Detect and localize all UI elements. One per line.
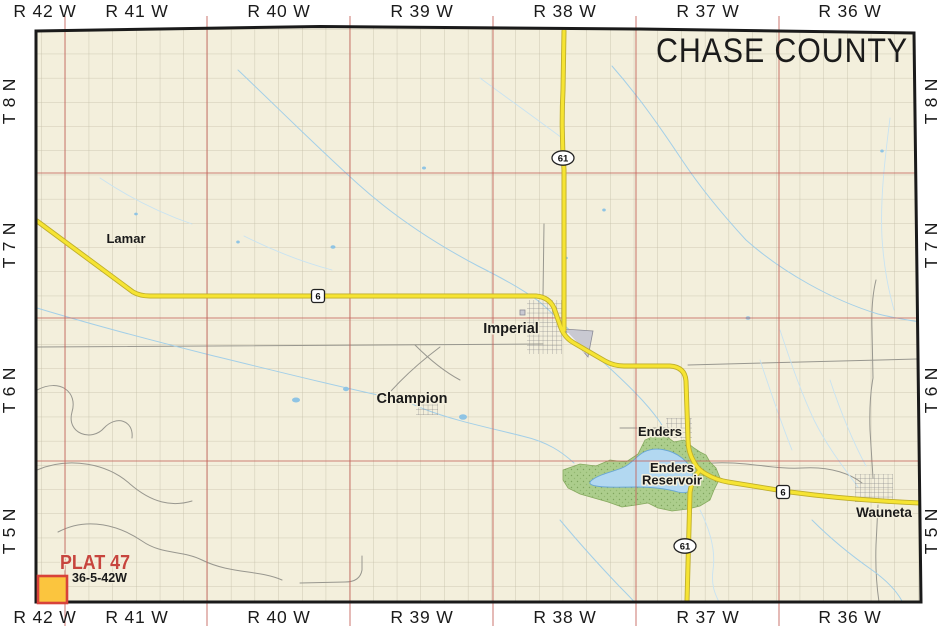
pond <box>343 387 349 391</box>
township-label-right: T 8 N <box>921 78 941 124</box>
pond <box>602 209 606 212</box>
highway-shield-6: 6 <box>777 486 790 499</box>
plat-47-code: 36-5-42W <box>72 571 127 585</box>
pond <box>292 398 300 403</box>
highway-shield-61: 61 <box>674 539 696 553</box>
urban-block <box>520 310 525 315</box>
township-label-left: T 6 N <box>0 367 19 413</box>
pond <box>880 150 884 153</box>
town-label-champion: Champion <box>377 391 448 407</box>
range-label-top: R 36 W <box>818 1 881 21</box>
range-label-bottom: R 38 W <box>533 607 596 627</box>
section-grid <box>36 26 922 603</box>
map-interior <box>36 26 940 604</box>
range-label-bottom: R 36 W <box>818 607 881 627</box>
highway-61-north <box>562 31 564 330</box>
shield-number: 6 <box>780 487 785 498</box>
range-label-top: R 40 W <box>247 1 310 21</box>
township-label-right: T 5 N <box>921 508 941 554</box>
pond <box>331 245 336 249</box>
shield-number: 61 <box>680 541 691 552</box>
township-label-left: T 5 N <box>0 508 19 554</box>
township-label-left: T 7 N <box>0 222 19 268</box>
town-label-wauneta: Wauneta <box>856 505 912 520</box>
highway-shield-6: 6 <box>312 290 325 303</box>
town-label-imperial: Imperial <box>483 321 539 337</box>
range-label-bottom: R 41 W <box>105 607 168 627</box>
pond <box>459 414 467 420</box>
highway-shield-61: 61 <box>552 151 574 165</box>
range-label-top: R 37 W <box>676 1 739 21</box>
water-labels: EndersReservoir <box>642 460 702 488</box>
range-label-bottom: R 42 W <box>13 607 76 627</box>
plat-47-square[interactable] <box>38 576 67 603</box>
township-label-left: T 8 N <box>0 78 19 124</box>
township-label-right: T 6 N <box>921 367 941 413</box>
town-label-enders: Enders <box>638 424 682 439</box>
chase-county-plat-map: R 42 WR 41 WR 40 WR 39 WR 38 WR 37 WR 36… <box>0 0 950 631</box>
range-label-top: R 38 W <box>533 1 596 21</box>
town-label-lamar: Lamar <box>106 231 145 246</box>
range-label-top: R 39 W <box>390 1 453 21</box>
water-label: Reservoir <box>642 473 702 488</box>
range-label-top: R 41 W <box>105 1 168 21</box>
pond <box>422 167 426 170</box>
township-label-right: T 7 N <box>921 222 941 268</box>
shield-number: 61 <box>558 153 569 164</box>
range-label-bottom: R 39 W <box>390 607 453 627</box>
range-label-top: R 42 W <box>13 1 76 21</box>
map-title: CHASE COUNTY <box>656 32 908 70</box>
shield-number: 6 <box>315 291 320 302</box>
pond <box>236 241 240 244</box>
range-label-bottom: R 37 W <box>676 607 739 627</box>
range-label-bottom: R 40 W <box>247 607 310 627</box>
pond <box>134 213 138 216</box>
